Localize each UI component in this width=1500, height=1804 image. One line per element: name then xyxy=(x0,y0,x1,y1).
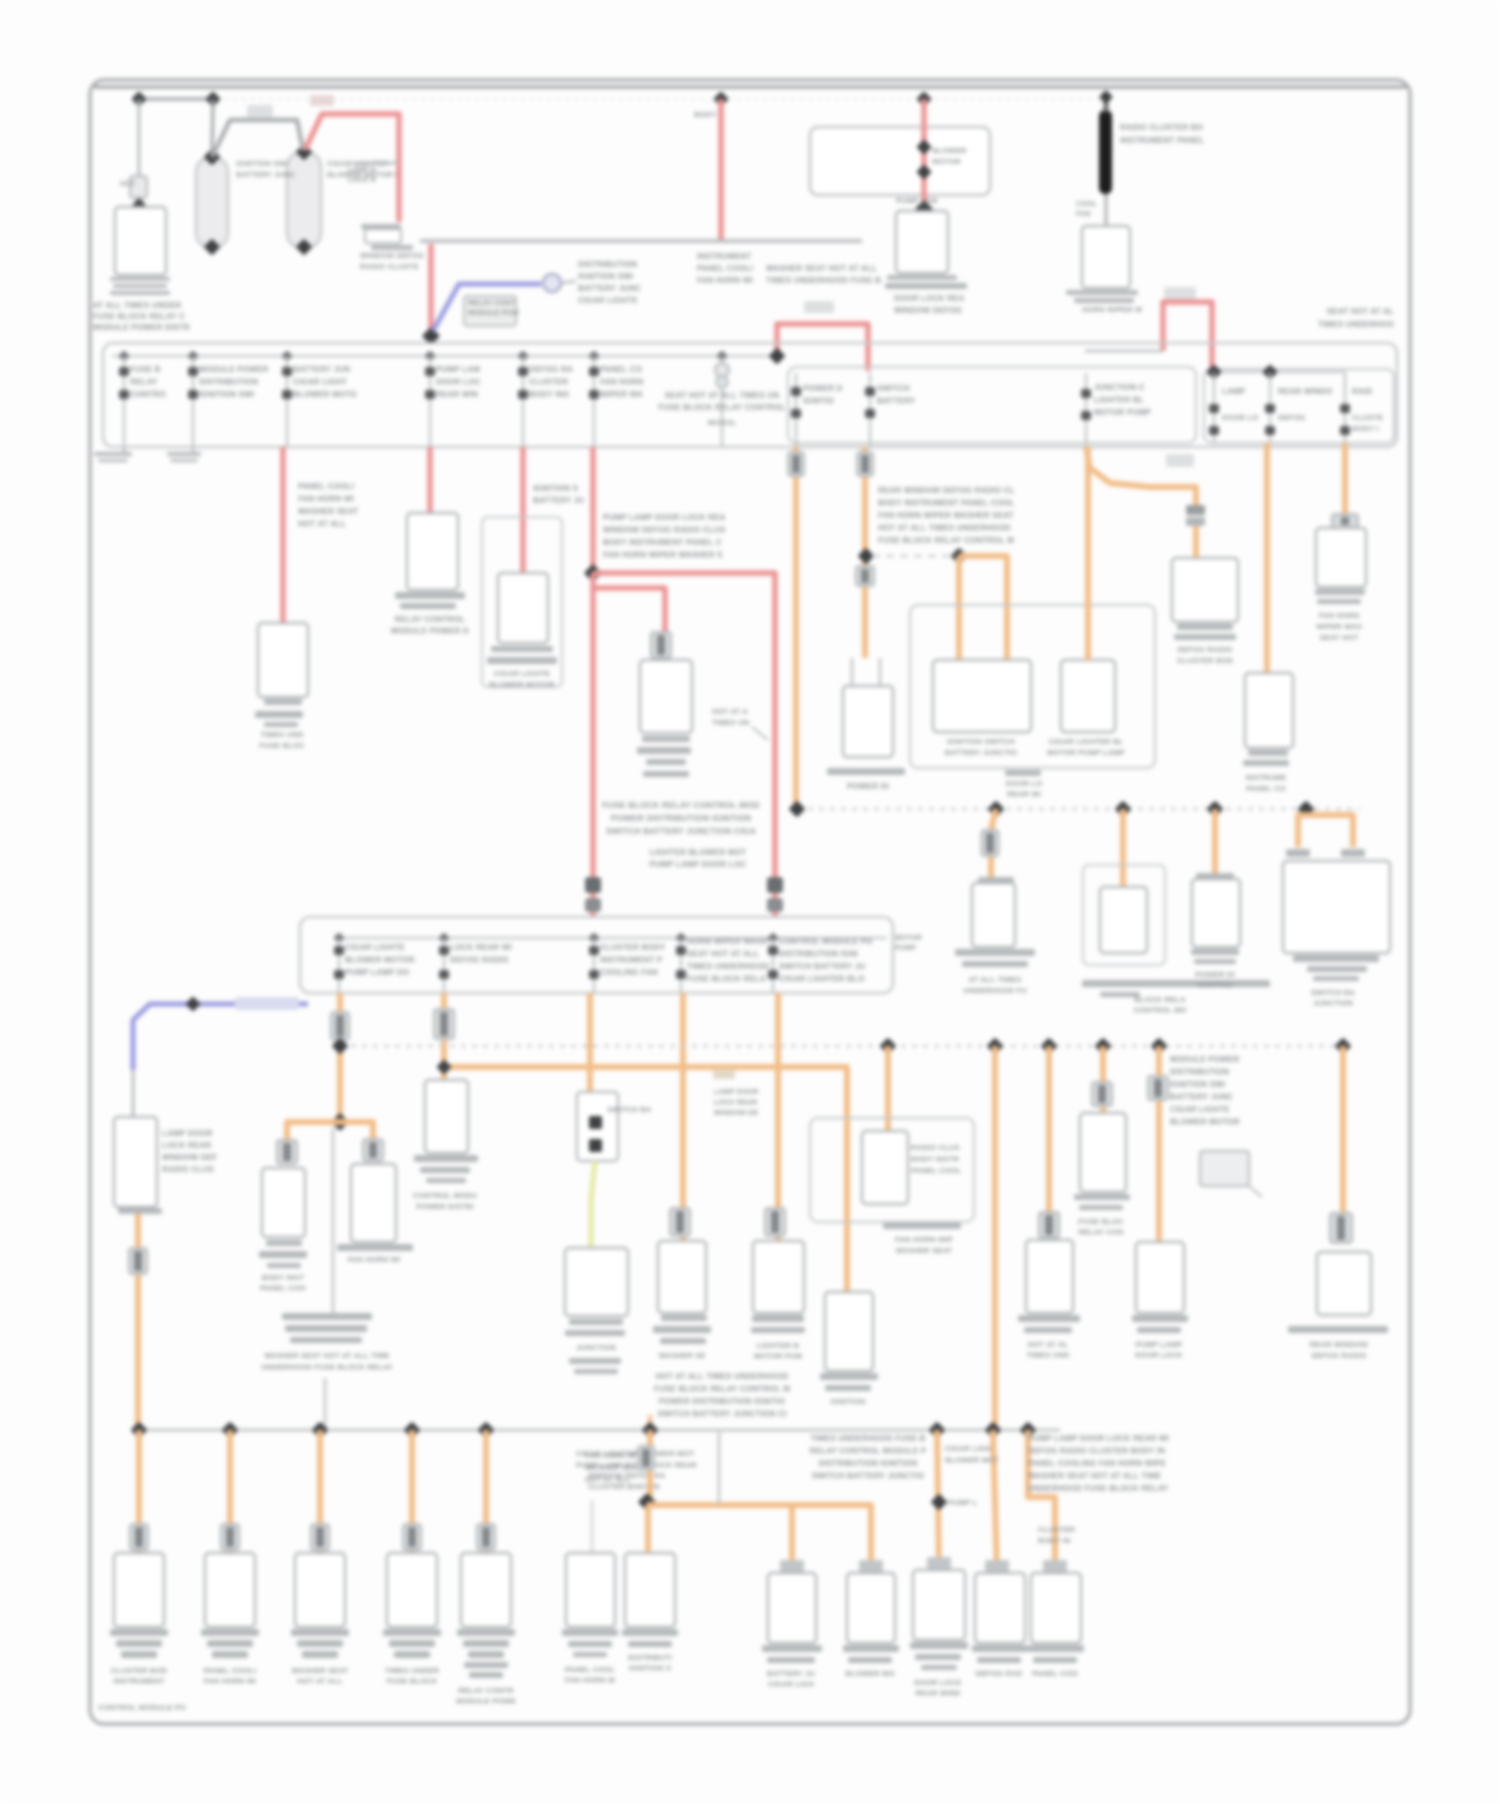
svg-text:HORN WIPER WASH: HORN WIPER WASH xyxy=(687,937,768,946)
svg-text:DEFOG RADIO: DEFOG RADIO xyxy=(1311,1351,1366,1360)
svg-text:RADI: RADI xyxy=(1352,387,1372,396)
svg-text:IGNITION SWI: IGNITION SWI xyxy=(578,272,633,281)
svg-text:CLUSTER: CLUSTER xyxy=(529,378,568,387)
svg-text:FAN HORN WI: FAN HORN WI xyxy=(348,1255,401,1264)
svg-text:PANEL COOLI: PANEL COOLI xyxy=(298,482,354,491)
svg-text:WASHER SEAT: WASHER SEAT xyxy=(292,1666,349,1675)
svg-text:POWER DISTRI: POWER DISTRI xyxy=(416,1202,473,1211)
svg-text:RELAY CONTROL MODULE P: RELAY CONTROL MODULE P xyxy=(810,1447,927,1456)
svg-text:FAN HORN WIPER WASHER SEAT: FAN HORN WIPER WASHER SEAT xyxy=(878,511,1014,520)
svg-text:BATTERY: BATTERY xyxy=(877,397,916,406)
svg-text:UNDERHOOD FU: UNDERHOOD FU xyxy=(963,986,1027,995)
svg-text:RELAY CON: RELAY CON xyxy=(1078,1228,1123,1237)
svg-text:PANEL COOL: PANEL COOL xyxy=(911,1166,962,1175)
svg-text:MOTOR PUMP: MOTOR PUMP xyxy=(1094,408,1151,417)
svg-text:DEFOG RADIO: DEFOG RADIO xyxy=(1177,645,1232,654)
svg-text:BATTERY JUN: BATTERY JUN xyxy=(293,365,350,374)
svg-text:DEFOG RAD: DEFOG RAD xyxy=(976,1669,1023,1678)
svg-text:IGNITION S: IGNITION S xyxy=(533,484,579,493)
svg-text:RADIO CLUSTER BO: RADIO CLUSTER BO xyxy=(1120,123,1203,132)
svg-text:REAR WINDOW DEFOG RADIO CL: REAR WINDOW DEFOG RADIO CL xyxy=(878,486,1015,495)
svg-text:WINDOW DEFOG RADIO CLUS: WINDOW DEFOG RADIO CLUS xyxy=(603,526,726,535)
svg-text:TIMES UNDERHOO: TIMES UNDERHOO xyxy=(1318,320,1394,329)
svg-text:FAN HORN W: FAN HORN W xyxy=(585,1451,636,1460)
svg-text:DISTRIBUTION IGNITION: DISTRIBUTION IGNITION xyxy=(819,1459,918,1468)
svg-text:SWITCH BATTERY JUNCTION CIGA: SWITCH BATTERY JUNCTION CIGA xyxy=(606,826,756,836)
svg-text:HOT AT ALL TIMES UNDERHOOD: HOT AT ALL TIMES UNDERHOOD xyxy=(878,524,1011,533)
svg-text:PUMP LAMP DOOR LOC: PUMP LAMP DOOR LOC xyxy=(650,860,747,869)
svg-text:WINDOW DEF: WINDOW DEF xyxy=(162,1153,217,1162)
svg-text:REAR WI: REAR WI xyxy=(1007,790,1041,799)
svg-text:FAN HORN W: FAN HORN W xyxy=(565,1676,616,1685)
svg-text:HORN WIPER W: HORN WIPER W xyxy=(1082,305,1143,314)
svg-text:FUSE B: FUSE B xyxy=(130,365,161,374)
svg-text:POWER DISTRIBUTION IGNITIO: POWER DISTRIBUTION IGNITIO xyxy=(659,1397,786,1406)
svg-text:REAR WIND: REAR WIND xyxy=(915,1689,961,1698)
svg-text:BATTERY JUNC: BATTERY JUNC xyxy=(578,284,641,293)
svg-text:RADIO CLUSTE: RADIO CLUSTE xyxy=(360,262,419,271)
svg-text:LAMP DOOR: LAMP DOOR xyxy=(162,1129,213,1138)
svg-text:LIGHTER BLOWER MOT: LIGHTER BLOWER MOT xyxy=(650,848,746,857)
svg-text:CONTRO: CONTRO xyxy=(130,390,166,399)
svg-text:BATTERY JU: BATTERY JU xyxy=(533,496,584,505)
svg-text:CIGAR LIGHTE: CIGAR LIGHTE xyxy=(578,296,638,305)
svg-text:PANEL COOLI: PANEL COOLI xyxy=(697,264,753,273)
svg-text:SWITCH BATTERY JU: SWITCH BATTERY JU xyxy=(779,962,865,971)
svg-text:TIMES UN: TIMES UN xyxy=(712,718,749,727)
svg-text:PUMP LAMP DO: PUMP LAMP DO xyxy=(345,968,409,977)
svg-text:SWITCH BA: SWITCH BA xyxy=(1311,988,1356,997)
svg-text:PUMP LAM: PUMP LAM xyxy=(436,365,480,374)
svg-text:COOL: COOL xyxy=(1076,201,1098,208)
svg-text:WASHER SEAT: WASHER SEAT xyxy=(298,507,358,516)
svg-text:PUMP LAMP DOOR LOCK REA: PUMP LAMP DOOR LOCK REA xyxy=(603,513,726,522)
svg-text:BLOWER MOTO: BLOWER MOTO xyxy=(293,390,357,399)
svg-text:UNDERHOOD FUSE BLOCK RELAY: UNDERHOOD FUSE BLOCK RELAY xyxy=(1028,1484,1169,1493)
svg-text:HOT AT ALL TIMES UNDERHOOD: HOT AT ALL TIMES UNDERHOOD xyxy=(656,1372,789,1381)
svg-text:BLOWER MOT: BLOWER MOT xyxy=(945,1456,999,1465)
svg-text:DEFOG RADIO CLUSTER BODY IN: DEFOG RADIO CLUSTER BODY IN xyxy=(1028,1447,1165,1456)
svg-text:DOOR LOCK REA: DOOR LOCK REA xyxy=(894,294,965,303)
svg-text:INSTRUMENT PANEL: INSTRUMENT PANEL xyxy=(1120,136,1204,145)
svg-text:IGNITION: IGNITION xyxy=(831,1397,866,1406)
svg-text:DISTRIBUTION: DISTRIBUTION xyxy=(199,378,258,387)
svg-text:CIGAR LIGH: CIGAR LIGH xyxy=(768,1680,814,1689)
svg-text:BATTERY JUNC: BATTERY JUNC xyxy=(236,170,296,179)
svg-text:DOOR LOCK: DOOR LOCK xyxy=(914,1678,962,1687)
svg-text:PUMP LAMP: PUMP LAMP xyxy=(1136,1340,1183,1349)
svg-text:SEAT HOT AT ALL TIMES UN: SEAT HOT AT ALL TIMES UN xyxy=(665,391,779,400)
svg-text:TIMES UNDERHOOD FUSE B: TIMES UNDERHOOD FUSE B xyxy=(766,276,881,285)
svg-text:CLUSTER: CLUSTER xyxy=(1038,1525,1075,1534)
svg-text:CLUSTER BOD: CLUSTER BOD xyxy=(1177,656,1234,665)
svg-text:LOCK R: LOCK R xyxy=(348,177,376,184)
svg-text:BLOWER MO: BLOWER MO xyxy=(845,1669,894,1678)
svg-text:REAR WINDO: REAR WINDO xyxy=(1278,387,1332,396)
svg-text:MODULE POWE: MODULE POWE xyxy=(456,1697,516,1706)
svg-text:CIGAR LIGHT: CIGAR LIGHT xyxy=(293,378,347,387)
svg-text:WASHER SEA: WASHER SEA xyxy=(585,1463,638,1472)
svg-text:DOOR LOC: DOOR LOC xyxy=(436,378,481,387)
svg-text:PANEL CO: PANEL CO xyxy=(1246,784,1286,793)
svg-text:MODULE POWER D: MODULE POWER D xyxy=(391,627,469,636)
svg-text:CIGAR LIGHTER BL: CIGAR LIGHTER BL xyxy=(1049,737,1124,746)
svg-text:TIMES UNDERHOOD FUSE B: TIMES UNDERHOOD FUSE B xyxy=(810,1434,925,1443)
svg-text:CLUSTER BODY: CLUSTER BODY xyxy=(600,943,666,952)
svg-text:BLOWER MOTOR: BLOWER MOTOR xyxy=(345,956,415,965)
svg-text:SEAT HOT AT ALL: SEAT HOT AT ALL xyxy=(687,950,759,959)
svg-text:SEAT HOT AT AL: SEAT HOT AT AL xyxy=(1327,307,1394,316)
svg-text:DEFOG: DEFOG xyxy=(1278,413,1306,422)
svg-text:IGNITION SWITCH: IGNITION SWITCH xyxy=(947,737,1015,746)
svg-text:POWER DISTRIBUTION IGNITION: POWER DISTRIBUTION IGNITION xyxy=(611,813,751,823)
svg-text:CIGAR LIGHTER BLO: CIGAR LIGHTER BLO xyxy=(779,975,865,984)
svg-text:FAN HORN: FAN HORN xyxy=(600,378,643,387)
svg-text:RELAY CONTR: RELAY CONTR xyxy=(458,1686,514,1695)
svg-text:SEAT HOT: SEAT HOT xyxy=(1320,633,1359,642)
svg-text:WASHER SEAT HOT AT ALL: WASHER SEAT HOT AT ALL xyxy=(766,264,877,273)
svg-text:INSTRUMENT P: INSTRUMENT P xyxy=(600,956,663,965)
svg-text:FAN HORN WI: FAN HORN WI xyxy=(204,1677,257,1686)
svg-text:FAN HORN: FAN HORN xyxy=(1319,611,1360,620)
svg-text:CIGAR LIGHTE: CIGAR LIGHTE xyxy=(1170,1105,1230,1114)
svg-text:IGNITION S: IGNITION S xyxy=(629,1664,671,1673)
svg-text:PANEL CO: PANEL CO xyxy=(600,365,642,374)
svg-text:RELAY CONTROL: RELAY CONTROL xyxy=(395,615,466,624)
svg-text:BATTERY JUNC: BATTERY JUNC xyxy=(1170,1093,1233,1102)
svg-text:PANEL COO: PANEL COO xyxy=(1032,1669,1078,1678)
svg-text:MOTOR PUMP LAMP: MOTOR PUMP LAMP xyxy=(1047,748,1125,757)
svg-text:BODY INSTRUMENT PANEL COOL: BODY INSTRUMENT PANEL COOL xyxy=(878,499,1015,508)
svg-text:BLOWER MOTOR: BLOWER MOTOR xyxy=(489,680,555,689)
svg-text:LOCK REAR WI: LOCK REAR WI xyxy=(450,943,512,952)
svg-text:CIGAR LIGHTE: CIGAR LIGHTE xyxy=(494,669,550,678)
svg-text:INSTRUMENT: INSTRUMENT xyxy=(113,1677,164,1686)
svg-text:DISTRIBUTION: DISTRIBUTION xyxy=(578,260,637,269)
svg-text:WINDOW DEFOG: WINDOW DEFOG xyxy=(894,306,962,315)
svg-text:TIMES UND: TIMES UND xyxy=(1026,1351,1069,1360)
svg-text:BATTERY JUNCTIO: BATTERY JUNCTIO xyxy=(945,748,1017,757)
svg-text:IGNITION: IGNITION xyxy=(1198,981,1233,990)
svg-text:CONTROL MODULE PO: CONTROL MODULE PO xyxy=(779,937,872,946)
svg-text:TIMES UNDERHOOD: TIMES UNDERHOOD xyxy=(687,962,769,971)
svg-text:CLUSTE: CLUSTE xyxy=(1352,413,1383,422)
svg-text:PUMP: PUMP xyxy=(895,945,916,952)
svg-text:SWITCH: SWITCH xyxy=(877,384,910,393)
svg-text:UNDERHOOD FUSE BLOCK RELAY: UNDERHOOD FUSE BLOCK RELAY xyxy=(261,1363,393,1372)
svg-text:BODY INS: BODY INS xyxy=(529,390,570,399)
svg-text:INSTRUMENT: INSTRUMENT xyxy=(697,252,751,261)
svg-text:FUSE BLOC: FUSE BLOC xyxy=(1078,1217,1124,1226)
svg-text:RADIO CLUS: RADIO CLUS xyxy=(911,1143,960,1152)
svg-text:BODY INST: BODY INST xyxy=(262,1273,305,1282)
svg-text:POWER DI: POWER DI xyxy=(847,782,889,791)
svg-text:BLOWER: BLOWER xyxy=(932,146,967,155)
svg-text:FAN: FAN xyxy=(1076,211,1091,218)
svg-text:CLUSTER BOD: CLUSTER BOD xyxy=(111,1666,168,1675)
svg-text:BLOWER MOTOR: BLOWER MOTOR xyxy=(1170,1118,1240,1127)
svg-text:BODY I: BODY I xyxy=(1352,424,1379,433)
svg-text:LAMP DOOR: LAMP DOOR xyxy=(714,1089,758,1096)
svg-text:LAMP D: LAMP D xyxy=(348,167,376,174)
svg-text:BODY INSTR: BODY INSTR xyxy=(911,1155,960,1164)
svg-text:SWITCH BA: SWITCH BA xyxy=(607,1105,652,1114)
svg-text:FAN HORN WI: FAN HORN WI xyxy=(298,495,354,504)
svg-text:PANEL COO: PANEL COO xyxy=(260,1284,306,1293)
svg-text:FAN HORN WIP: FAN HORN WIP xyxy=(895,1235,953,1244)
svg-text:BATTERY JU: BATTERY JU xyxy=(767,1669,815,1678)
svg-text:CIGAR LIGH: CIGAR LIGH xyxy=(945,1444,991,1453)
svg-text:WINDOW DE: WINDOW DE xyxy=(714,1110,758,1117)
svg-text:FUSE BLOCK RELAY C: FUSE BLOCK RELAY C xyxy=(93,312,185,321)
svg-text:FUSE BLOCK RELAY CONTROL: FUSE BLOCK RELAY CONTROL xyxy=(658,403,785,412)
svg-text:DOOR LO: DOOR LO xyxy=(1006,779,1042,788)
svg-text:SWITCH BATTERY JUNCTIO: SWITCH BATTERY JUNCTIO xyxy=(812,1472,924,1481)
svg-text:REAR WINDOW: REAR WINDOW xyxy=(1310,1340,1369,1349)
svg-text:FUSE BLOCK RELAY CONTROL M: FUSE BLOCK RELAY CONTROL M xyxy=(878,536,1014,545)
svg-text:BLOCK RELA: BLOCK RELA xyxy=(1134,995,1186,1004)
svg-text:TIMES UND: TIMES UND xyxy=(260,730,303,739)
svg-text:BODY: BODY xyxy=(694,110,716,119)
svg-text:WASHER SEAT: WASHER SEAT xyxy=(896,1246,953,1255)
svg-text:WASHER SE: WASHER SE xyxy=(659,1351,706,1360)
svg-text:PUMP LAM: PUMP LAM xyxy=(896,196,937,205)
svg-text:WASHER SEAT HOT AT ALL TIME: WASHER SEAT HOT AT ALL TIME xyxy=(264,1351,389,1360)
svg-text:FUSE BLOC: FUSE BLOC xyxy=(259,741,305,750)
svg-text:MODUL: MODUL xyxy=(708,418,737,427)
svg-text:FAN HORN WI: FAN HORN WI xyxy=(697,276,753,285)
svg-text:LOCK REAR: LOCK REAR xyxy=(162,1141,211,1150)
svg-text:WIPER WAS: WIPER WAS xyxy=(1316,622,1362,631)
svg-text:FUSE BLOCK RELA: FUSE BLOCK RELA xyxy=(687,975,766,984)
svg-text:WINDOW DEFOG: WINDOW DEFOG xyxy=(360,251,424,260)
svg-text:BODY INSTRUMENT PANEL C: BODY INSTRUMENT PANEL C xyxy=(603,538,722,547)
svg-text:LAMP: LAMP xyxy=(1222,387,1246,396)
svg-text:TIMES UNDER: TIMES UNDER xyxy=(385,1666,439,1675)
svg-text:HOT: HOT xyxy=(120,181,136,188)
svg-text:MOTOR PUM: MOTOR PUM xyxy=(754,1352,802,1361)
svg-text:MODULE POWER: MODULE POWER xyxy=(199,365,269,374)
svg-text:LIGHTER B: LIGHTER B xyxy=(757,1341,800,1350)
svg-text:LIGHTER BL: LIGHTER BL xyxy=(1094,396,1144,405)
svg-text:MODULE POWER: MODULE POWER xyxy=(1170,1055,1240,1064)
svg-text:PUMP L: PUMP L xyxy=(948,1498,978,1507)
svg-text:INSTRUME: INSTRUME xyxy=(1246,773,1287,782)
svg-text:JUNCTION: JUNCTION xyxy=(576,1343,616,1352)
svg-text:RADIO CLUS: RADIO CLUS xyxy=(162,1165,214,1174)
svg-text:MODULE POW: MODULE POW xyxy=(468,310,519,317)
svg-text:IGNITION SWI: IGNITION SWI xyxy=(199,390,254,399)
svg-text:DEFOG RA: DEFOG RA xyxy=(529,365,573,374)
svg-text:DEFOG RADIO: DEFOG RADIO xyxy=(450,956,509,965)
svg-text:FUSE BLOCK: FUSE BLOCK xyxy=(387,1677,438,1686)
svg-text:POWER D: POWER D xyxy=(803,384,843,393)
svg-text:RELAY CONT: RELAY CONT xyxy=(468,300,515,307)
svg-text:PANEL COOLI: PANEL COOLI xyxy=(204,1666,257,1675)
svg-text:DOOR LOCK: DOOR LOCK xyxy=(1135,1351,1183,1360)
svg-text:PANEL COOL: PANEL COOL xyxy=(565,1665,616,1674)
svg-text:HOT AT ALL: HOT AT ALL xyxy=(297,1677,343,1686)
svg-text:CONTROL MO: CONTROL MO xyxy=(1133,1006,1186,1015)
svg-text:JUNCTION: JUNCTION xyxy=(1313,999,1353,1008)
svg-text:HOT AT ALL: HOT AT ALL xyxy=(585,1475,631,1484)
svg-text:WIPER WA: WIPER WA xyxy=(600,390,643,399)
svg-text:DOOR LO: DOOR LO xyxy=(1222,413,1258,422)
svg-text:LOCK REAR: LOCK REAR xyxy=(714,1100,757,1107)
svg-text:SWITCH BATTERY JUNCTION CI: SWITCH BATTERY JUNCTION CI xyxy=(657,1410,786,1419)
svg-text:JUNCTION C: JUNCTION C xyxy=(1094,383,1145,392)
svg-text:DISTRIBUTI: DISTRIBUTI xyxy=(628,1653,672,1662)
svg-text:AT ALL TIMES: AT ALL TIMES xyxy=(968,975,1021,984)
svg-text:WASHER SEAT HOT AT ALL TIME: WASHER SEAT HOT AT ALL TIME xyxy=(1028,1472,1162,1481)
svg-text:RELAY: RELAY xyxy=(130,378,158,387)
svg-text:DISTRIBUTION: DISTRIBUTION xyxy=(1170,1068,1229,1077)
svg-text:HOT AT AL: HOT AT AL xyxy=(1028,1340,1069,1349)
svg-text:CONTROL MODULE PO: CONTROL MODULE PO xyxy=(98,1703,186,1712)
svg-text:MOTOR: MOTOR xyxy=(932,157,961,166)
svg-text:HOT AT ALL: HOT AT ALL xyxy=(298,520,346,529)
svg-text:MODULE POWER DISTR: MODULE POWER DISTR xyxy=(93,323,190,332)
svg-text:COOLING FAN: COOLING FAN xyxy=(600,968,658,977)
svg-text:HOT AT A: HOT AT A xyxy=(712,707,748,716)
svg-text:IGNITION SWI: IGNITION SWI xyxy=(236,159,288,168)
svg-text:FUSE BLOCK RELAY CONTROL MOD: FUSE BLOCK RELAY CONTROL MOD xyxy=(602,800,760,810)
svg-text:POWER DI: POWER DI xyxy=(1195,970,1235,979)
svg-text:BODY IN: BODY IN xyxy=(1038,1536,1071,1545)
svg-text:REAR WIN: REAR WIN xyxy=(436,390,478,399)
svg-text:FUSE BLOCK RELAY CONTROL M: FUSE BLOCK RELAY CONTROL M xyxy=(654,1385,790,1394)
svg-text:MOTOR: MOTOR xyxy=(895,935,922,942)
svg-text:IGNITIO: IGNITIO xyxy=(803,397,834,406)
svg-text:CONTROL MODU: CONTROL MODU xyxy=(413,1191,477,1200)
svg-text:FAN HORN WIPER WASHER S: FAN HORN WIPER WASHER S xyxy=(603,551,723,560)
svg-text:IGNITION SWI: IGNITION SWI xyxy=(1170,1080,1225,1089)
svg-text:DISTRIBUTION IGNI: DISTRIBUTION IGNI xyxy=(779,950,858,959)
svg-text:AT ALL TIMES UNDER: AT ALL TIMES UNDER xyxy=(93,301,181,310)
svg-text:PUMP LAMP DOOR LOCK REAR WI: PUMP LAMP DOOR LOCK REAR WI xyxy=(1028,1434,1169,1443)
svg-text:CIGAR LIGHTE: CIGAR LIGHTE xyxy=(345,943,405,952)
svg-text:PANEL COOLING FAN HORN WIPE: PANEL COOLING FAN HORN WIPE xyxy=(1028,1459,1166,1468)
